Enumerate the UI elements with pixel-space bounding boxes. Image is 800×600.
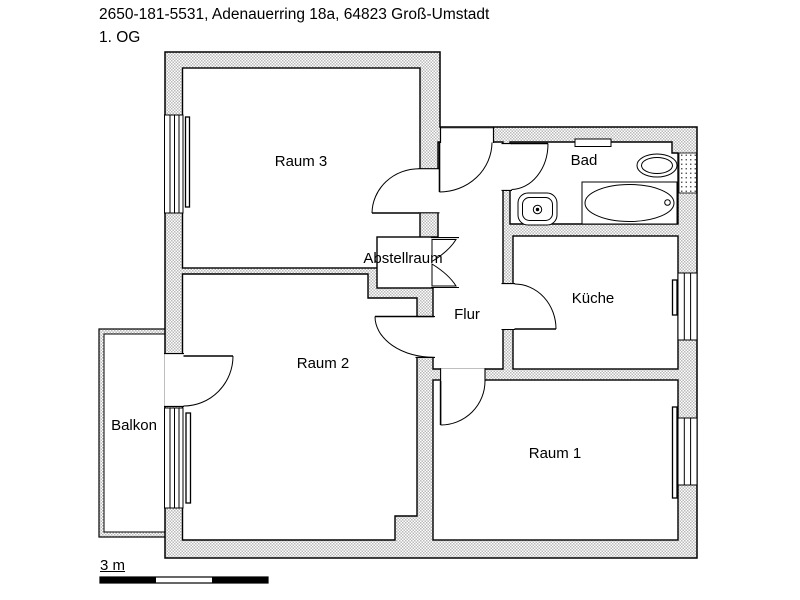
washbasin bbox=[637, 154, 677, 177]
room-label-flur: Flur bbox=[454, 307, 480, 323]
bad-window bbox=[679, 153, 697, 193]
floor-label: 1. OG bbox=[99, 30, 140, 46]
room-raum2 bbox=[183, 274, 418, 540]
wall-vent bbox=[575, 139, 611, 147]
floor-plan-drawing bbox=[0, 0, 800, 600]
raum3-window bbox=[165, 115, 190, 213]
room-label-abstellraum: Abstellraum bbox=[363, 251, 442, 267]
raum2-window bbox=[165, 408, 191, 508]
room-label-kueche: Küche bbox=[572, 291, 615, 307]
scale-label: 3 m bbox=[100, 558, 125, 574]
shower bbox=[518, 193, 557, 225]
bathtub bbox=[582, 182, 677, 224]
room-label-raum3: Raum 3 bbox=[275, 154, 328, 170]
room-label-raum2: Raum 2 bbox=[297, 356, 350, 372]
room-label-raum1: Raum 1 bbox=[529, 446, 582, 462]
scale-bar bbox=[100, 577, 268, 583]
room-label-bad: Bad bbox=[571, 153, 598, 169]
page-title: 2650-181-5531, Adenauerring 18a, 64823 G… bbox=[99, 7, 489, 23]
room-label-balkon: Balkon bbox=[111, 418, 157, 434]
floor-plan-page: 2650-181-5531, Adenauerring 18a, 64823 G… bbox=[0, 0, 800, 600]
raum1-window bbox=[673, 407, 698, 498]
